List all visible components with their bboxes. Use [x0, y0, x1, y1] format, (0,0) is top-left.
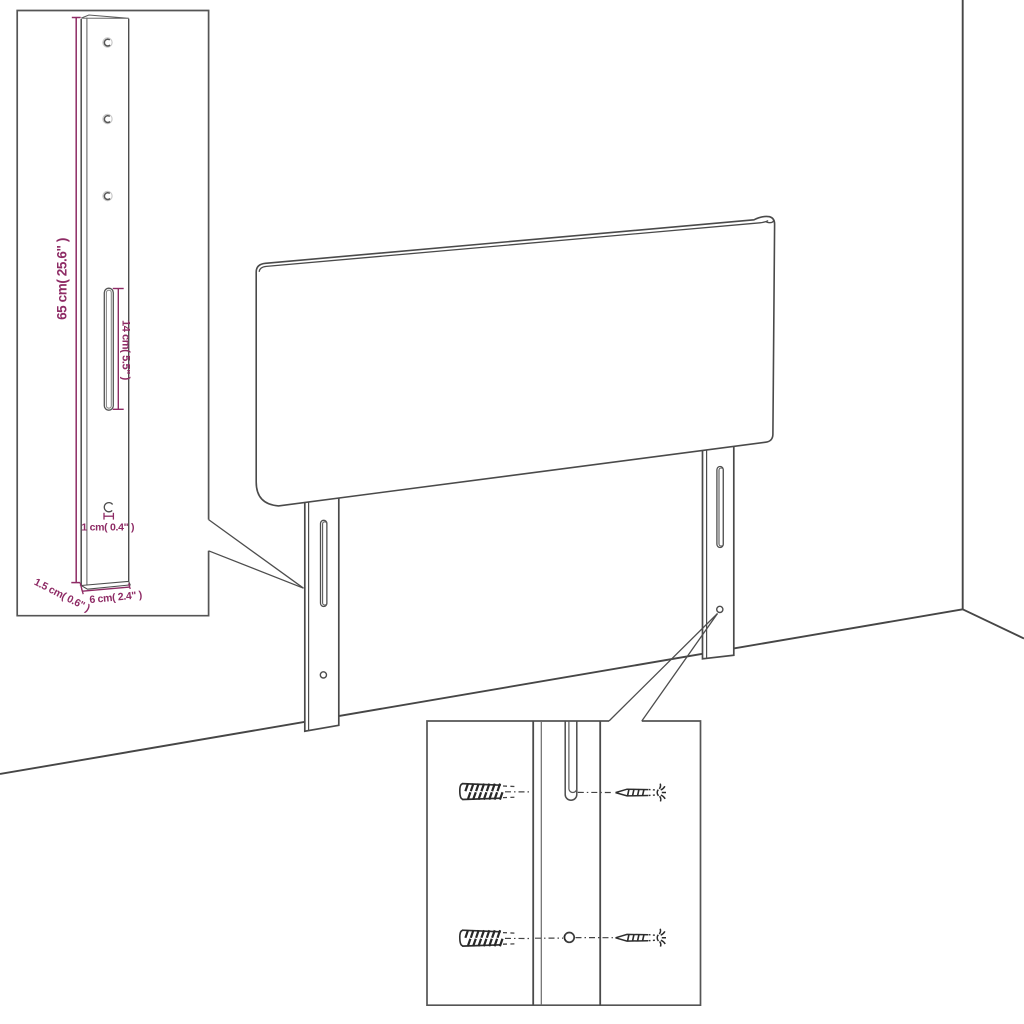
svg-text:14 cm( 5.5" ): 14 cm( 5.5" ): [120, 320, 132, 381]
svg-text:65 cm( 25.6" ): 65 cm( 25.6" ): [55, 238, 70, 320]
svg-text:1 cm( 0.4" ): 1 cm( 0.4" ): [81, 522, 134, 534]
